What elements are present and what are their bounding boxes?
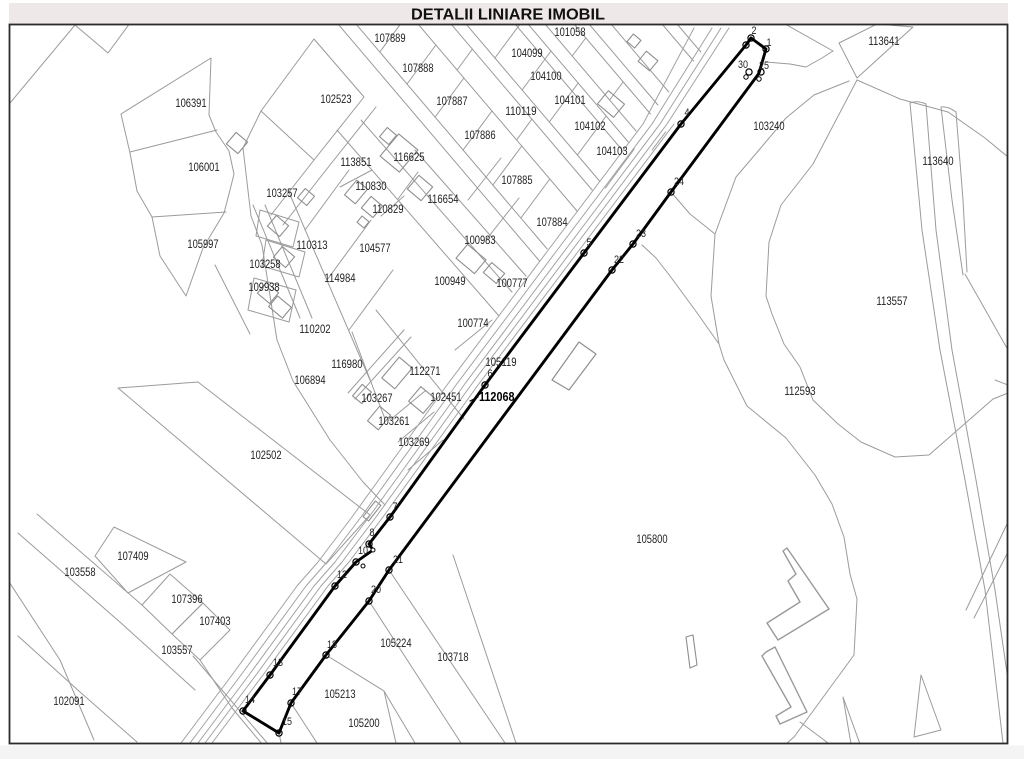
svg-text:104101: 104101 (554, 93, 585, 107)
svg-text:107409: 107409 (117, 549, 148, 563)
svg-text:13: 13 (273, 657, 283, 669)
svg-text:104577: 104577 (359, 241, 390, 255)
svg-text:104103: 104103 (596, 144, 627, 158)
svg-text:105997: 105997 (187, 237, 218, 251)
svg-text:116654: 116654 (427, 192, 458, 206)
svg-text:103269: 103269 (398, 435, 429, 449)
svg-text:110202: 110202 (299, 322, 330, 336)
svg-text:102523: 102523 (320, 92, 351, 106)
svg-text:2: 2 (752, 25, 757, 37)
svg-text:107889: 107889 (374, 31, 405, 45)
svg-text:103258: 103258 (249, 257, 280, 271)
svg-text:110313: 110313 (296, 238, 327, 252)
svg-text:100983: 100983 (464, 233, 495, 247)
svg-text:102091: 102091 (53, 694, 84, 708)
svg-text:113640: 113640 (922, 154, 953, 168)
svg-text:107403: 107403 (199, 614, 230, 628)
svg-text:114984: 114984 (324, 271, 355, 285)
svg-text:116980: 116980 (331, 357, 362, 371)
svg-text:100777: 100777 (496, 276, 527, 290)
svg-text:112068: 112068 (479, 389, 515, 404)
svg-text:104099: 104099 (511, 46, 542, 60)
svg-text:107887: 107887 (436, 94, 467, 108)
svg-text:10: 10 (358, 545, 368, 557)
svg-text:DETALII LINIARE IMOBIL: DETALII LINIARE IMOBIL (411, 7, 605, 24)
svg-text:4: 4 (685, 107, 690, 119)
svg-text:102451: 102451 (430, 390, 461, 404)
svg-text:106391: 106391 (175, 96, 206, 110)
svg-text:105213: 105213 (324, 687, 355, 701)
svg-text:106001: 106001 (188, 160, 219, 174)
svg-text:5: 5 (587, 237, 592, 249)
svg-text:8: 8 (370, 527, 375, 539)
svg-text:21: 21 (393, 554, 403, 566)
svg-text:112593: 112593 (784, 384, 815, 398)
svg-text:107885: 107885 (501, 173, 532, 187)
svg-text:112271: 112271 (409, 364, 440, 378)
svg-text:24: 24 (674, 176, 684, 188)
svg-text:100949: 100949 (434, 274, 465, 288)
svg-text:105800: 105800 (636, 532, 667, 546)
svg-text:107396: 107396 (171, 592, 202, 606)
svg-text:113641: 113641 (868, 34, 899, 48)
svg-text:103718: 103718 (437, 650, 468, 664)
svg-text:14: 14 (245, 694, 255, 706)
svg-text:106894: 106894 (294, 373, 325, 387)
svg-text:103257: 103257 (266, 186, 297, 200)
svg-text:17: 17 (292, 686, 302, 698)
svg-text:30: 30 (738, 59, 748, 71)
svg-text:107886: 107886 (464, 128, 495, 142)
svg-text:102502: 102502 (250, 448, 281, 462)
svg-text:103261: 103261 (378, 414, 409, 428)
svg-text:113851: 113851 (340, 155, 371, 169)
svg-text:110829: 110829 (372, 202, 403, 216)
svg-text:104100: 104100 (530, 69, 561, 83)
svg-text:6: 6 (488, 368, 493, 380)
svg-text:12: 12 (337, 569, 347, 581)
svg-text:110830: 110830 (355, 179, 386, 193)
svg-text:1: 1 (767, 37, 772, 49)
svg-text:22: 22 (614, 254, 624, 266)
svg-text:107884: 107884 (536, 215, 567, 229)
svg-text:105224: 105224 (380, 636, 411, 650)
svg-text:103267: 103267 (361, 391, 392, 405)
svg-text:116625: 116625 (393, 150, 424, 164)
svg-text:20: 20 (371, 584, 381, 596)
svg-text:105119: 105119 (485, 355, 516, 369)
svg-text:105200: 105200 (348, 716, 379, 730)
svg-text:110119: 110119 (505, 104, 536, 118)
svg-text:107888: 107888 (402, 61, 433, 75)
svg-text:18: 18 (327, 639, 337, 651)
svg-text:7: 7 (393, 501, 398, 513)
svg-text:25: 25 (759, 60, 769, 72)
svg-text:103557: 103557 (161, 643, 192, 657)
svg-text:101058: 101058 (554, 25, 585, 39)
svg-text:15: 15 (282, 716, 292, 728)
svg-text:103240: 103240 (753, 119, 784, 133)
svg-text:113557: 113557 (876, 294, 907, 308)
svg-text:109938: 109938 (248, 280, 279, 294)
svg-text:104102: 104102 (574, 119, 605, 133)
svg-text:23: 23 (636, 228, 646, 240)
svg-text:100774: 100774 (457, 316, 488, 330)
svg-text:103558: 103558 (64, 565, 95, 579)
